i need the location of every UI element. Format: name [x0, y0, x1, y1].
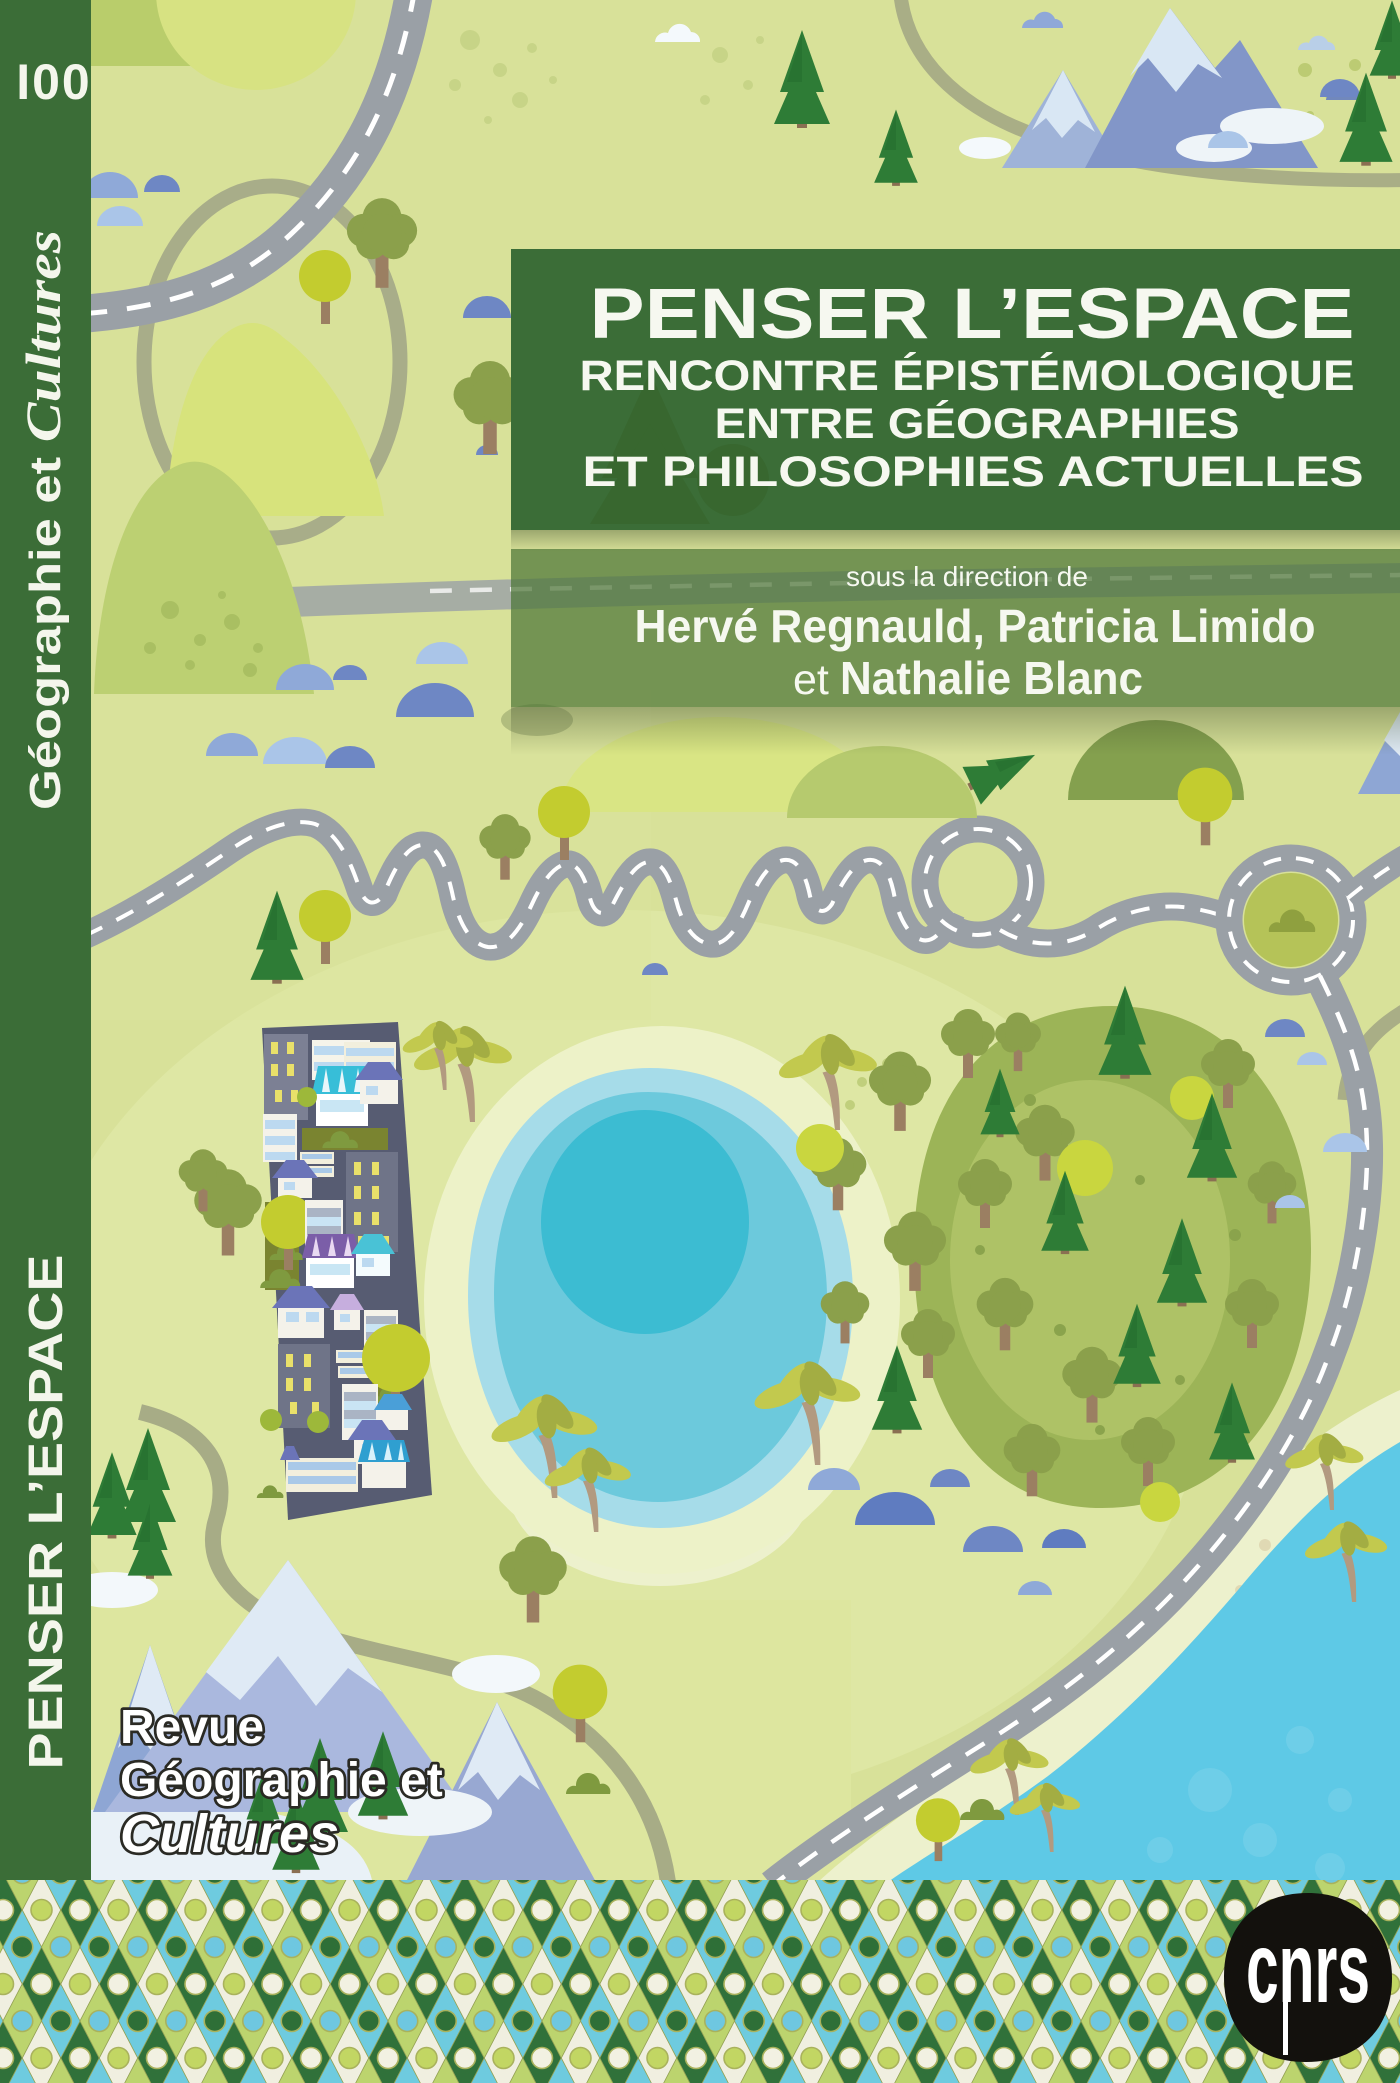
svg-text:ENTRE GÉOGRAPHIES: ENTRE GÉOGRAPHIES — [715, 400, 1240, 448]
svg-text:Revue: Revue — [120, 1701, 264, 1754]
svg-text:et: et — [793, 656, 829, 704]
svg-text:PENSER L’ESPACE: PENSER L’ESPACE — [20, 1255, 73, 1770]
svg-text:ET PHILOSOPHIES ACTUELLES: ET PHILOSOPHIES ACTUELLES — [583, 448, 1364, 496]
svg-text:Géographie et: Géographie et — [120, 1754, 443, 1807]
svg-text:PENSER L’ESPACE: PENSER L’ESPACE — [590, 275, 1355, 354]
svg-text:Nathalie Blanc: Nathalie Blanc — [840, 652, 1143, 704]
svg-text:Hervé Regnauld, Patricia Limid: Hervé Regnauld, Patricia Limido — [635, 600, 1316, 652]
svg-text:sous la direction de: sous la direction de — [846, 561, 1088, 592]
svg-text:RENCONTRE ÉPISTÉMOLOGIQUE: RENCONTRE ÉPISTÉMOLOGIQUE — [580, 352, 1355, 400]
svg-text:Cultures: Cultures — [120, 1804, 339, 1864]
svg-text:Géographie et Cultures: Géographie et Cultures — [15, 230, 71, 810]
svg-text:I00: I00 — [16, 54, 92, 110]
svg-text:cnrs: cnrs — [1246, 1912, 1370, 2024]
